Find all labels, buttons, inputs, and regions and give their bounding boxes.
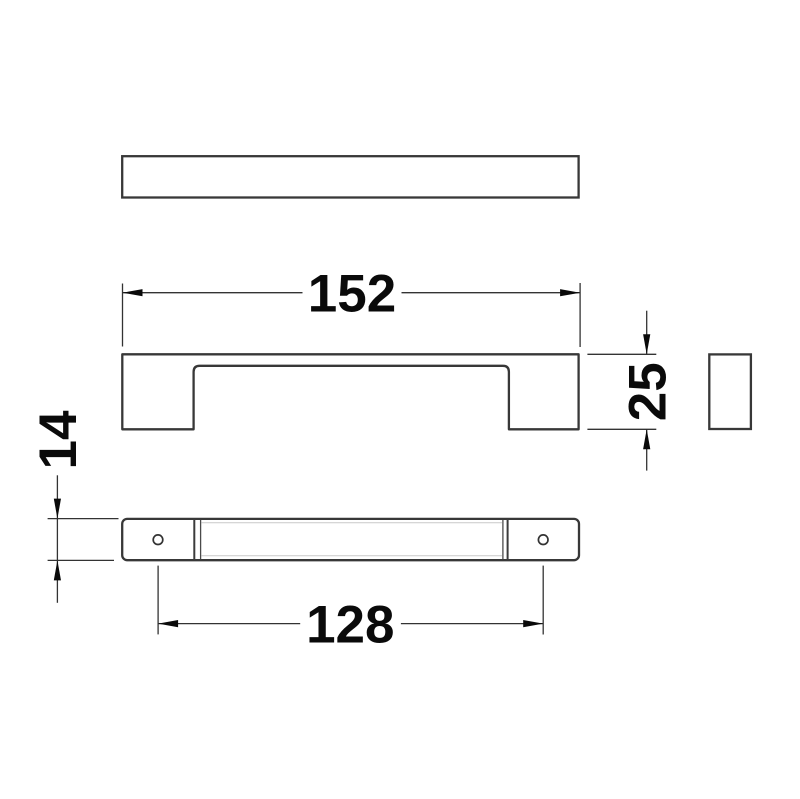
svg-text:128: 128 <box>306 596 394 655</box>
svg-text:25: 25 <box>618 362 677 421</box>
svg-text:152: 152 <box>308 265 396 324</box>
svg-text:14: 14 <box>29 410 88 469</box>
